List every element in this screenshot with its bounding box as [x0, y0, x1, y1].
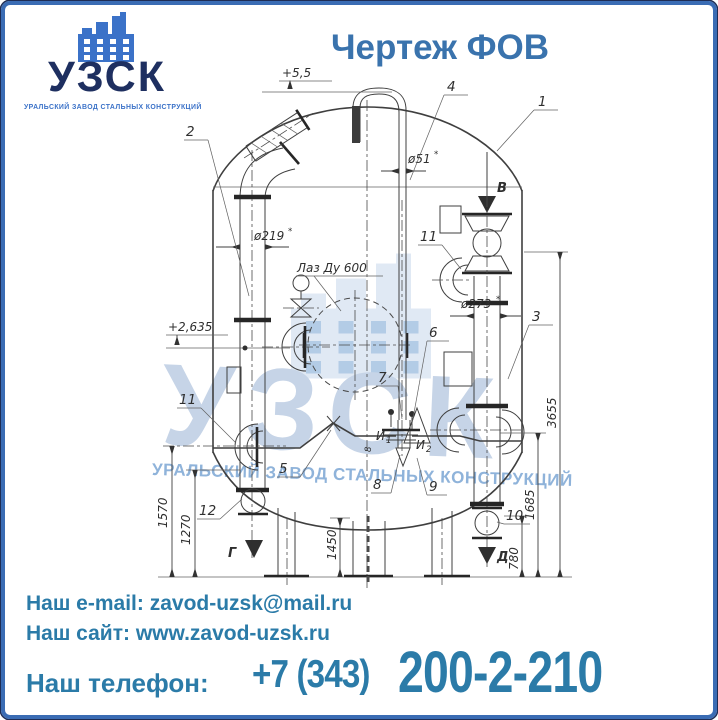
part-1-label: 1	[538, 94, 547, 110]
tap-i1-sub: 1	[386, 436, 391, 446]
page-title: Чертеж ФОВ	[300, 28, 580, 68]
right-outlet-line: В Д	[404, 152, 524, 568]
email-label: Наш e-mail:	[26, 592, 144, 615]
part-3-label: 3	[532, 309, 541, 325]
site-value: www.zavod-uzsk.ru	[136, 622, 330, 645]
svg-text:*: *	[434, 150, 438, 160]
left-inlet-pipe: Г	[227, 142, 299, 561]
dia-vent-label: ø51	[407, 152, 431, 166]
flow-arrow-g-icon	[245, 540, 263, 558]
support-legs	[264, 508, 470, 585]
dia-left-pipe-label: ø219	[253, 229, 284, 243]
part-10-label: 10	[506, 508, 523, 524]
logo-name: УЗСК	[24, 56, 190, 99]
dim-3655-label: 3655	[545, 397, 559, 428]
part-2-label: 2	[186, 124, 195, 140]
contact-website: Наш сайт: www.zavod-uzsk.ru	[26, 622, 330, 646]
phone-number: 200-2-210	[398, 639, 602, 706]
site-label: Наш сайт:	[26, 622, 130, 645]
part-5-label: 5	[279, 461, 288, 477]
part-4-label: 4	[447, 79, 456, 95]
flow-letter-g: Г	[228, 546, 237, 561]
tap-i1-label: И	[376, 429, 385, 443]
email-value: zavod-uzsk@mail.ru	[150, 592, 353, 615]
dim-1450-label: 1450	[325, 529, 339, 560]
contact-email: Наш e-mail: zavod-uzsk@mail.ru	[26, 592, 352, 616]
phone-prefix: +7 (343)	[252, 653, 370, 697]
top-angled-nozzle	[238, 103, 320, 168]
part-7-label: 7	[378, 370, 387, 386]
dim-1270-label: 1270	[179, 514, 193, 545]
part-12-label: 12	[199, 503, 216, 519]
part-11-right-label: 11	[420, 229, 437, 245]
logo-subtitle: УРАЛЬСКИЙ ЗАВОД СТАЛЬНЫХ КОНСТРУКЦИЙ	[24, 104, 190, 111]
dim-1685-label: 1685	[523, 489, 537, 520]
manhole-label: Лаз Ду 600	[296, 261, 367, 275]
dia-right-pipe-label: ø273	[460, 297, 491, 311]
part-8-label: 8	[373, 477, 382, 493]
dim-780-label: 780	[507, 547, 521, 570]
dim-1570-label: 1570	[156, 497, 170, 528]
level-mid-label: +2,635	[168, 320, 212, 334]
part-6-label: 6	[429, 325, 438, 341]
left-shell-nozzles	[163, 275, 330, 470]
svg-text:*: *	[496, 295, 500, 305]
tap-i2-label: И	[416, 438, 425, 452]
diameter-dimensions: ø51 * ø219 * ø273 *	[216, 150, 521, 316]
phone-label: Наш телефон:	[26, 668, 209, 699]
dim-8-label: 8	[364, 446, 374, 452]
part-9-label: 9	[429, 479, 438, 495]
manhole: Лаз Ду 600	[296, 261, 413, 400]
pipe-bracket	[227, 367, 241, 393]
internal-distributor: И 1 И 2 8	[213, 409, 522, 466]
tap-i2-sub: 2	[426, 445, 431, 455]
flow-letter-b: В	[497, 181, 507, 196]
flow-arrow-d-icon	[478, 547, 496, 564]
svg-text:*: *	[288, 227, 292, 237]
level-top-label: +5,5	[282, 66, 311, 80]
part-11-left-label: 11	[179, 392, 196, 408]
